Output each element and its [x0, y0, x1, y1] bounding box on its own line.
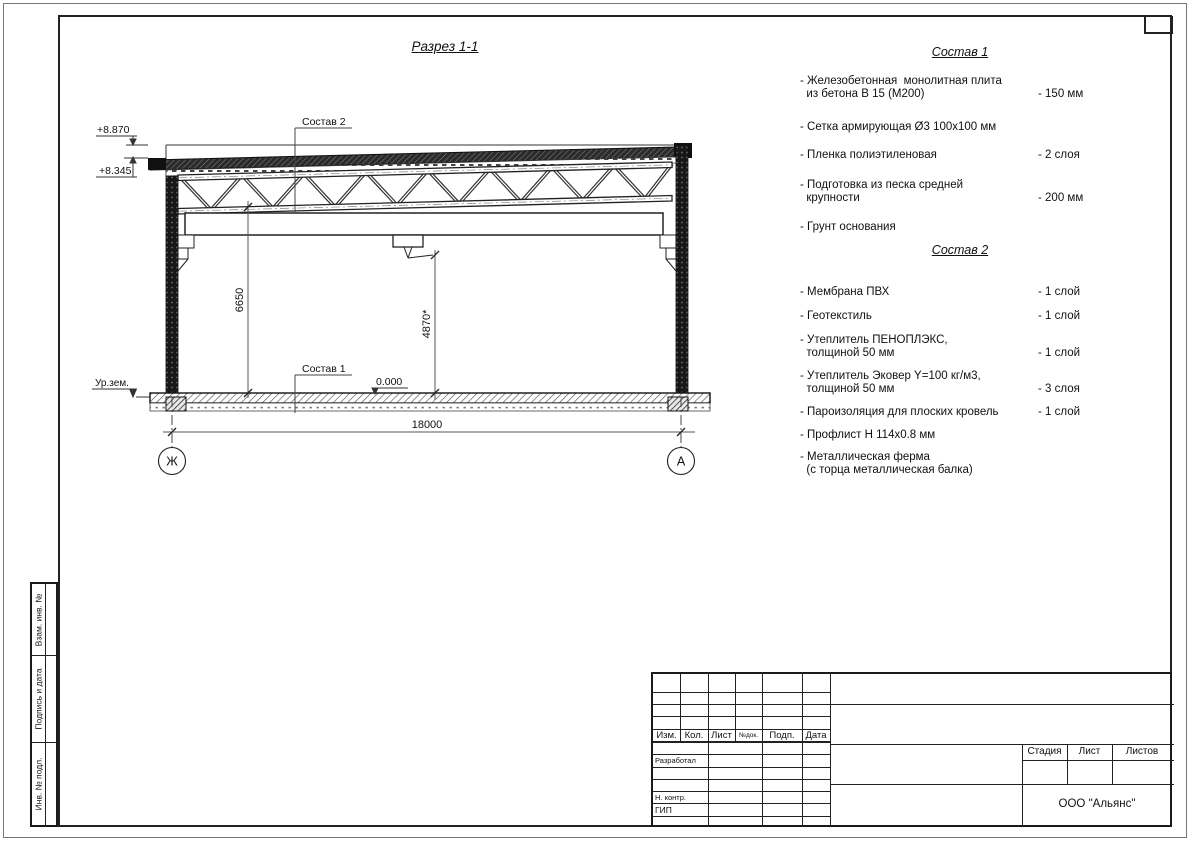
sostav2-heading: Состав 2: [805, 243, 1115, 257]
material-value: - 3 слоя: [1038, 383, 1080, 396]
material-name: - Металлическая ферма (с торца металличе…: [800, 451, 1100, 477]
top-right-stamp-box: [1144, 16, 1173, 34]
left-margin-stamps: Взам. инв. № Подпись и дата Инв. № подл.: [30, 582, 58, 827]
floor-slab: [136, 393, 710, 411]
stamp-label: Подпись и дата: [34, 668, 44, 729]
material-value: - 1 слой: [1038, 406, 1080, 419]
material-item: - Железобетонная монолитная плита из бет…: [800, 75, 1100, 101]
truss-bottom-chord: [178, 196, 672, 215]
hanging-fixture: [393, 235, 433, 258]
axis-right-label: А: [677, 455, 686, 469]
elev-roof-label: +8.345: [99, 165, 132, 177]
ground-label: Ур.зем.: [95, 378, 129, 389]
stamp-label: Инв. № подл.: [34, 757, 44, 810]
material-value: - 1 слой: [1038, 347, 1080, 360]
tb-col-kol: Кол.: [680, 730, 708, 741]
material-value: - 150 мм: [1038, 88, 1083, 101]
sostav2-ref-label: Состав 2: [302, 116, 346, 128]
sostav1-ref-label: Состав 1: [302, 363, 346, 375]
material-item: - Мембрана ПВХ - 1 слой: [800, 286, 1100, 299]
tb-col-list: Лист: [708, 730, 735, 741]
material-item: - Утеплитель ПЕНОПЛЭКС, толщиной 50 мм -…: [800, 334, 1100, 360]
material-name: - Профлист Н 114х0.8 мм: [800, 429, 1100, 442]
drawing-sheet: Разрез 1-1: [0, 0, 1191, 842]
tb-col-ndok: №док.: [735, 732, 762, 739]
material-name: - Сетка армирующая Ø3 100х100 мм: [800, 121, 1100, 134]
tb-stage-label: Стадия: [1022, 746, 1067, 757]
material-item: - Пароизоляция для плоских кровель - 1 с…: [800, 406, 1100, 419]
material-item: - Пленка полиэтиленовая - 2 слоя: [800, 149, 1100, 162]
section-drawing: Состав 2 Состав 1 +8.870 +8.345 Ур.зем. …: [0, 0, 790, 510]
ground-mark: [92, 389, 137, 397]
title-block: Изм. Кол. Лист №док. Подп. Дата Разработ…: [651, 672, 1172, 827]
tb-company: ООО "Альянс": [1022, 798, 1172, 810]
stamp-inv: Инв. № подл.: [32, 742, 45, 825]
axis-left-label: Ж: [166, 455, 178, 469]
zero-level-label: 0.000: [376, 376, 402, 388]
tb-col-izm: Изм.: [653, 730, 680, 741]
tb-sheets-label: Листов: [1112, 746, 1172, 757]
wall-right: [676, 145, 688, 397]
material-item: - Грунт основания: [800, 221, 1100, 234]
material-name: - Грунт основания: [800, 221, 1100, 234]
stamp-label: Взам. инв. №: [34, 593, 44, 646]
sostav1-heading: Состав 1: [805, 45, 1115, 59]
material-value: - 1 слой: [1038, 310, 1080, 323]
footing-right: [668, 397, 688, 411]
dim-4870-label: 4870*: [421, 309, 433, 338]
tb-col-podp: Подп.: [762, 730, 802, 741]
material-value: - 1 слой: [1038, 286, 1080, 299]
dim-6650-label: 6650: [234, 288, 246, 312]
footing-left: [166, 397, 186, 411]
material-item: - Профлист Н 114х0.8 мм: [800, 429, 1100, 442]
material-item: - Сетка армирующая Ø3 100х100 мм: [800, 121, 1100, 134]
tb-role-developed: Разработал: [655, 756, 708, 765]
material-item: - Подготовка из песка средней крупности …: [800, 179, 1100, 205]
tb-sheet-label: Лист: [1067, 746, 1112, 757]
material-item: - Геотекстиль - 1 слой: [800, 310, 1100, 323]
material-item: - Металлическая ферма (с торца металличе…: [800, 451, 1100, 477]
material-value: - 2 слоя: [1038, 149, 1080, 162]
material-value: - 200 мм: [1038, 192, 1083, 205]
stamp-podpis: Подпись и дата: [32, 655, 45, 742]
stamp-vzam: Взам. инв. №: [32, 584, 45, 655]
support-beam: [178, 213, 676, 271]
tb-col-data: Дата: [802, 730, 830, 741]
tb-role-normcontrol: Н. контр.: [655, 793, 708, 802]
dim-18000-label: 18000: [412, 419, 443, 431]
tb-role-gip: ГИП: [655, 805, 708, 815]
roof-edge-flashing-left: [148, 158, 166, 170]
material-item: - Утеплитель Эковер Y=100 кг/м3, толщино…: [800, 370, 1100, 396]
wall-left: [166, 176, 178, 397]
elev-top-label: +8.870: [97, 124, 130, 136]
